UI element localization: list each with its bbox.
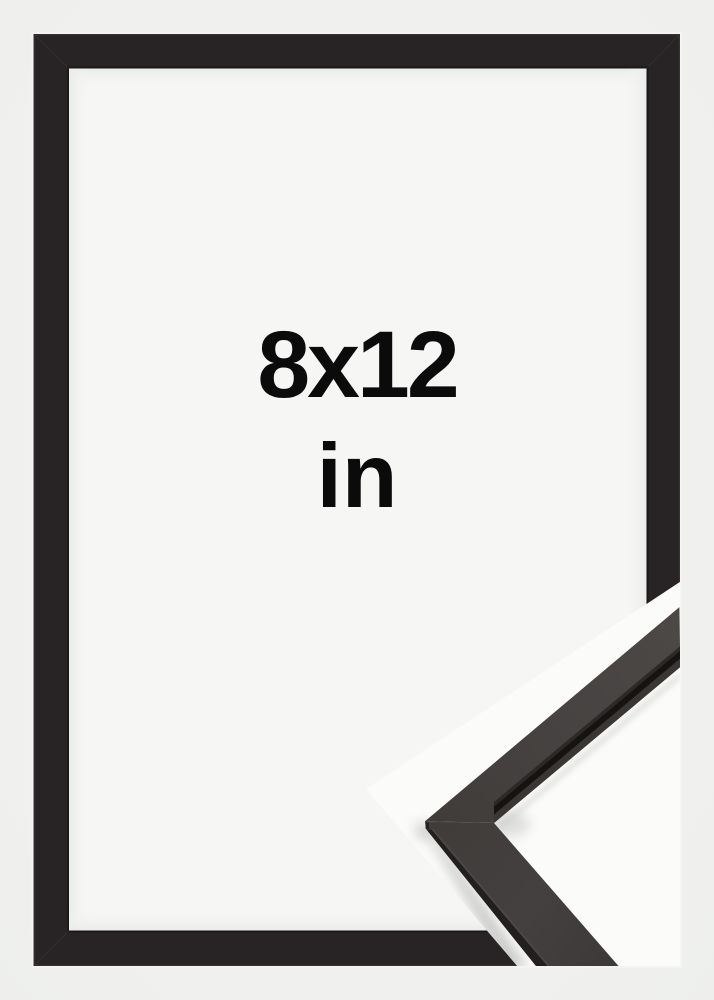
svg-text:8x12: 8x12 — [257, 312, 457, 418]
svg-text:in: in — [317, 426, 398, 527]
